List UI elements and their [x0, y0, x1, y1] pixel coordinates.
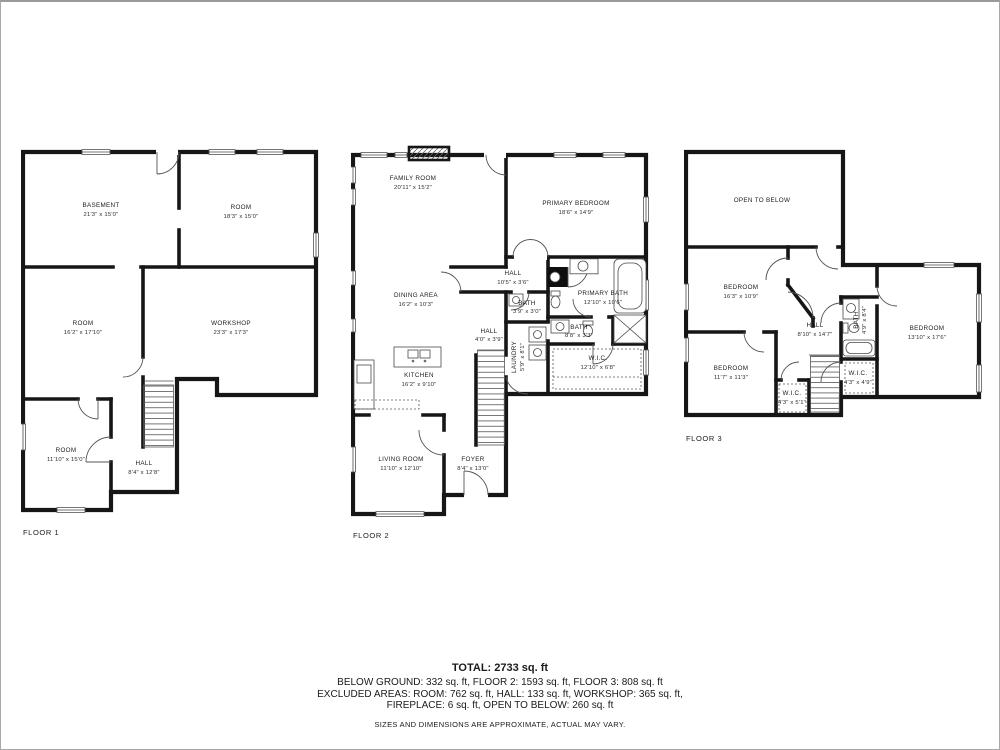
excluded-areas-line: EXCLUDED AREAS: ROOM: 762 sq. ft, HALL: …: [1, 689, 999, 701]
room-label: BATH: [518, 300, 536, 307]
room-label: BEDROOM: [910, 325, 945, 332]
room-label: FAMILY ROOM: [390, 175, 436, 182]
room-dims: 11'10" x 15'0": [47, 457, 85, 463]
room-dims: 18'3" x 15'0": [224, 214, 259, 220]
room-label: ROOM: [56, 447, 77, 454]
floor-1-plan: BASEMENT 21'3" x 15'0" ROOM 18'3" x 15'0…: [21, 148, 321, 520]
room-dims: 20'11" x 15'2": [394, 185, 432, 191]
area-summary: TOTAL: 2733 sq. ft BELOW GROUND: 332 sq.…: [1, 662, 999, 729]
room-label: W.I.C.: [849, 370, 868, 377]
floor-2-label: FLOOR 2: [353, 531, 389, 540]
room-dims: 11'10" x 12'10": [380, 466, 421, 472]
room-dims: 18'6" x 14'9": [559, 210, 594, 216]
room-dims: 3'9" x 3'0": [513, 309, 541, 315]
disclaimer: SIZES AND DIMENSIONS ARE APPROXIMATE, AC…: [1, 720, 999, 729]
room-label: BATH: [570, 324, 588, 331]
floor-3-plan: OPEN TO BELOW BEDROOM 16'3" x 10'9" HALL…: [684, 148, 984, 445]
room-label: BATH: [853, 311, 860, 329]
room-label: LAUNDRY: [511, 340, 518, 373]
room-dims: 10'5" x 3'6": [497, 280, 528, 286]
room-label: BASEMENT: [82, 202, 119, 209]
room-dims: 4'0" x 3'9": [475, 337, 503, 343]
room-label: WORKSHOP: [211, 320, 251, 327]
room-dims: 16'2" x 10'3": [399, 302, 434, 308]
room-label: ROOM: [231, 204, 252, 211]
floor-2-plan: FAMILY ROOM 20'11" x 15'2" PRIMARY BEDRO…: [351, 145, 651, 525]
room-dims: 8'4" x 12'8": [128, 470, 159, 476]
fireplace-icon: [409, 147, 449, 160]
room-dims: 4'3" x 4'9": [844, 380, 872, 386]
room-label: LIVING ROOM: [378, 456, 423, 463]
room-label: HALL: [481, 328, 498, 335]
floor-1-label: FLOOR 1: [23, 528, 59, 537]
room-dims: 12'10" x 10'6": [584, 300, 622, 306]
room-label: HALL: [136, 460, 153, 467]
room-label: BEDROOM: [724, 284, 759, 291]
room-dims: 11'7" x 11'3": [714, 375, 748, 381]
room-label: PRIMARY BATH: [578, 290, 628, 297]
room-dims: 16'3" x 10'9": [724, 294, 759, 300]
floor-3-label: FLOOR 3: [686, 434, 722, 443]
room-dims: 4'9" x 8'4": [862, 306, 868, 334]
room-dims: 16'2" x 9'10": [402, 382, 437, 388]
room-dims: 5'9" x 8'1": [520, 343, 526, 371]
room-dims: 13'10" x 17'6": [908, 335, 946, 341]
room-label: ROOM: [73, 320, 94, 327]
floor-areas-line: BELOW GROUND: 332 sq. ft, FLOOR 2: 1593 …: [1, 677, 999, 689]
room-dims: 23'3" x 17'3": [214, 330, 249, 336]
room-dims: 8'10" x 14'7": [798, 332, 833, 338]
total-area: TOTAL: 2733 sq. ft: [1, 662, 999, 674]
room-label: DINING AREA: [394, 292, 438, 299]
room-label: W.I.C.: [589, 355, 608, 362]
room-dims: 21'3" x 15'0": [84, 212, 119, 218]
room-label: W.I.C.: [783, 390, 802, 397]
room-dims: 12'10" x 6'8": [581, 365, 616, 371]
room-label: HALL: [505, 270, 522, 277]
excluded-areas-line-2: FIREPLACE: 6 sq. ft, OPEN TO BELOW: 260 …: [1, 700, 999, 712]
room-label: FOYER: [461, 456, 484, 463]
floor3-stairs-icon: [809, 355, 840, 412]
room-dims: 8'8" x 3'3": [565, 333, 593, 339]
room-label: PRIMARY BEDROOM: [542, 200, 609, 207]
room-dims: 4'3" x 5'1": [778, 400, 806, 406]
room-dims: 8'4" x 13'0": [457, 466, 488, 472]
floor2-stairs-icon: [478, 350, 505, 445]
room-label: OPEN TO BELOW: [734, 197, 791, 204]
room-label: BEDROOM: [714, 365, 749, 372]
room-dims: 16'2" x 17'10": [64, 330, 102, 336]
floor1-stairs-icon: [144, 381, 174, 447]
room-label: HALL: [807, 322, 824, 329]
floorplan-canvas: BASEMENT 21'3" x 15'0" ROOM 18'3" x 15'0…: [0, 0, 1000, 750]
room-label: KITCHEN: [404, 372, 434, 379]
